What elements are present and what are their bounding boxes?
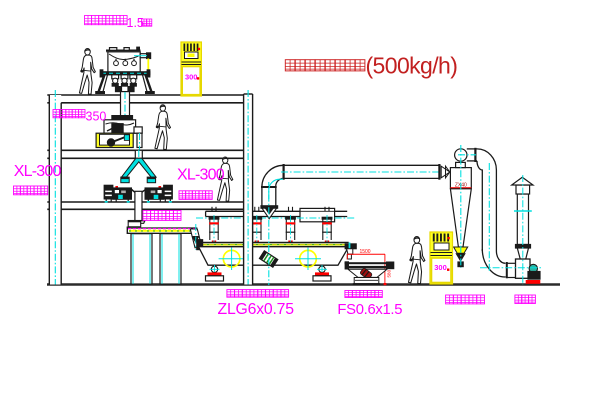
svg-text:ZLG6x0.75: ZLG6x0.75	[218, 301, 295, 318]
svg-text:FS0.6x1.5: FS0.6x1.5	[337, 302, 402, 318]
svg-text:XL-300: XL-300	[14, 163, 62, 180]
svg-text:(500kg/h): (500kg/h)	[366, 53, 458, 79]
svg-text:350: 350	[86, 110, 107, 124]
svg-text:300: 300	[185, 73, 198, 82]
svg-text:XL-300: XL-300	[177, 166, 225, 183]
svg-text:580: 580	[387, 269, 392, 277]
svg-text:300: 300	[434, 263, 447, 272]
svg-text:1500: 1500	[359, 249, 370, 255]
